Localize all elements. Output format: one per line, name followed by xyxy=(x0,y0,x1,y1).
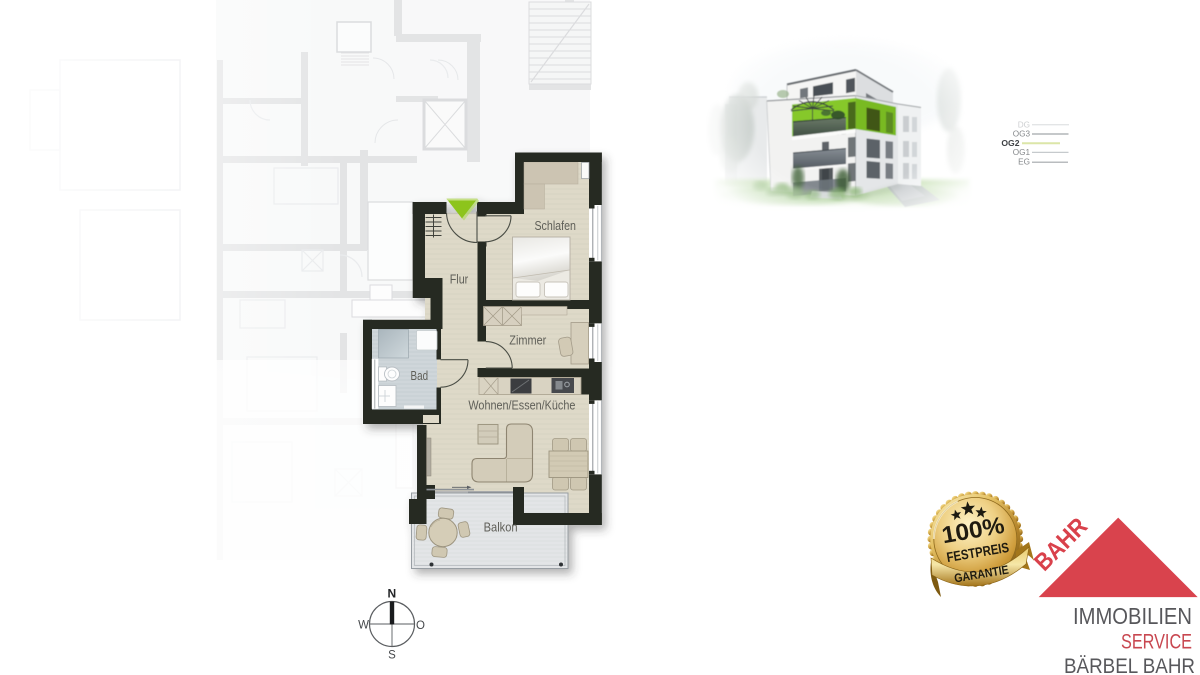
svg-text:OG2: OG2 xyxy=(1001,138,1019,148)
svg-text:IMMOBILIEN: IMMOBILIEN xyxy=(1073,603,1192,629)
svg-text:BÄRBEL BAHR: BÄRBEL BAHR xyxy=(1064,654,1195,675)
svg-text:SERVICE: SERVICE xyxy=(1121,630,1192,654)
svg-text:EG: EG xyxy=(1018,158,1030,167)
svg-text:N: N xyxy=(387,587,396,601)
svg-text:DG: DG xyxy=(1018,120,1030,129)
svg-text:Flur: Flur xyxy=(450,272,469,287)
svg-text:Wohnen/Essen/Küche: Wohnen/Essen/Küche xyxy=(468,397,575,412)
svg-text:W: W xyxy=(358,620,369,632)
svg-text:Balkon: Balkon xyxy=(484,521,518,535)
svg-text:S: S xyxy=(388,650,396,662)
svg-text:Bad: Bad xyxy=(411,369,429,383)
svg-text:O: O xyxy=(416,620,425,632)
svg-text:Schlafen: Schlafen xyxy=(534,218,576,233)
svg-text:OG1: OG1 xyxy=(1013,148,1031,157)
svg-text:Zimmer: Zimmer xyxy=(509,332,547,347)
